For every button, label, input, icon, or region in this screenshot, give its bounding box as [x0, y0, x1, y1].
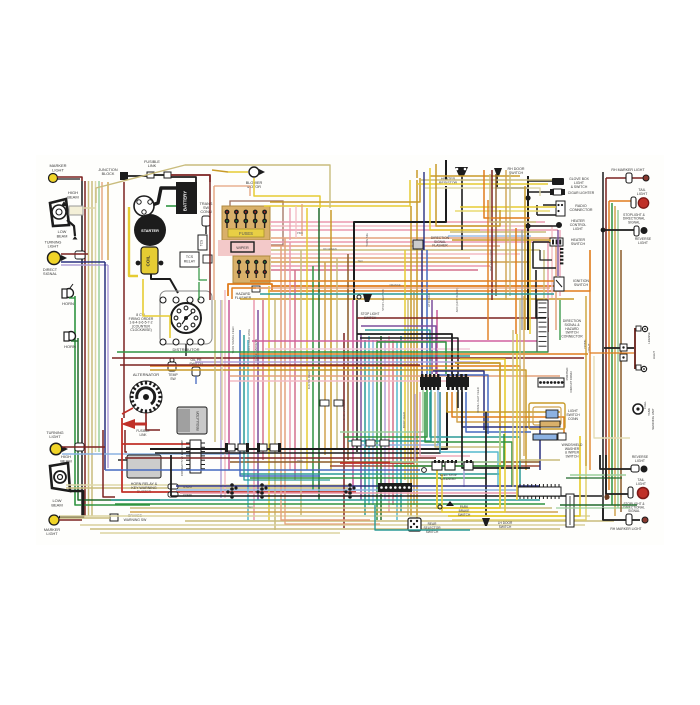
svg-text:ACC (HOT IN ACC): ACC (HOT IN ACC) — [455, 288, 459, 313]
svg-text:SOLENOID: SOLENOID — [440, 477, 456, 481]
svg-text:SIGNAL: SIGNAL — [43, 272, 57, 276]
svg-text:LINK: LINK — [148, 164, 157, 168]
svg-text:FUEL: FUEL — [643, 401, 647, 409]
svg-text:BODY FEED: BODY FEED — [402, 412, 406, 428]
svg-text:CIGAR LIGHTER: CIGAR LIGHTER — [568, 191, 595, 195]
svg-text:LIGHT: LIGHT — [652, 351, 656, 359]
svg-text:CLOCKWISE): CLOCKWISE) — [130, 328, 151, 332]
svg-text:TAN: TAN — [358, 259, 363, 263]
svg-text:BLOCK: BLOCK — [102, 172, 115, 176]
svg-text:ACC FEED WIRE: ACC FEED WIRE — [247, 329, 251, 351]
svg-text:SENDING UNIT: SENDING UNIT — [651, 408, 655, 430]
svg-text:BEAM: BEAM — [51, 503, 62, 508]
svg-text:CIRCUIT CONN: CIRCUIT CONN — [569, 372, 573, 393]
svg-text:BATTERY: BATTERY — [183, 191, 188, 211]
svg-text:BEAM: BEAM — [57, 235, 68, 239]
svg-text:PINK: PINK — [297, 231, 303, 235]
svg-text:SWITCH: SWITCH — [574, 283, 589, 287]
svg-text:SIGNAL: SIGNAL — [628, 509, 640, 513]
svg-text:CONNECTOR: CONNECTOR — [561, 335, 583, 339]
svg-text:HORN: HORN — [62, 301, 74, 306]
svg-text:LIGHT: LIGHT — [52, 168, 64, 173]
svg-text:LIGHT: LIGHT — [573, 227, 583, 231]
svg-text:SWITCH: SWITCH — [571, 242, 586, 246]
svg-text:LIGHT: LIGHT — [635, 459, 645, 463]
svg-text:& SWITCH: & SWITCH — [571, 185, 588, 189]
svg-text:STARTER: STARTER — [141, 229, 159, 233]
svg-text:TURN SIG: TURN SIG — [365, 233, 369, 246]
svg-text:ENG HARNESS: ENG HARNESS — [342, 400, 346, 420]
svg-text:DOME LIGHT FEED: DOME LIGHT FEED — [476, 387, 480, 413]
svg-text:SWITCH: SWITCH — [364, 316, 377, 320]
svg-text:BAT FEED WIRE: BAT FEED WIRE — [489, 249, 493, 271]
svg-text:RELAY: RELAY — [184, 260, 196, 264]
svg-text:HORN: HORN — [64, 344, 76, 349]
svg-text:SWITCH: SWITCH — [499, 525, 512, 529]
svg-text:SWITCH: SWITCH — [509, 171, 524, 175]
svg-text:FLASHER: FLASHER — [432, 244, 448, 248]
svg-text:LOW: LOW — [58, 230, 67, 234]
svg-text:TCS: TCS — [200, 240, 204, 246]
svg-text:TCS: TCS — [186, 255, 194, 259]
svg-text:DASH HARNESS: DASH HARNESS — [254, 339, 258, 361]
svg-text:LIGHT: LIGHT — [638, 241, 648, 245]
svg-text:LIGHT: LIGHT — [637, 192, 648, 196]
svg-text:WARNING SW: WARNING SW — [124, 518, 147, 522]
svg-text:TAN: TAN — [248, 505, 253, 509]
svg-text:IGN SW FEED: IGN SW FEED — [307, 371, 311, 390]
svg-text:BRN: BRN — [297, 459, 303, 463]
svg-text:LICENSE: LICENSE — [647, 332, 651, 344]
svg-text:LINK: LINK — [139, 433, 147, 437]
svg-text:COIL: COIL — [146, 255, 151, 266]
svg-text:CONNECTOR: CONNECTOR — [569, 208, 592, 212]
svg-text:WIPER: WIPER — [236, 246, 249, 250]
svg-text:REGULATOR: REGULATOR — [196, 411, 200, 431]
svg-text:ALTERNATOR: ALTERNATOR — [133, 372, 159, 377]
svg-text:SWITCH: SWITCH — [565, 454, 579, 458]
svg-text:RH MARKER LIGHT: RH MARKER LIGHT — [610, 527, 641, 531]
svg-text:STOP LIGHT SW: STOP LIGHT SW — [381, 289, 385, 311]
svg-text:TURN SIGNAL FEED: TURN SIGNAL FEED — [231, 327, 235, 354]
svg-text:LIGHT: LIGHT — [48, 245, 60, 249]
svg-text:CONN: CONN — [568, 417, 579, 421]
svg-text:SW: SW — [170, 377, 176, 381]
svg-text:LIGHT: LIGHT — [636, 482, 646, 486]
svg-text:LIGHT: LIGHT — [49, 435, 61, 439]
svg-text:BEAM: BEAM — [67, 195, 78, 200]
svg-text:LIGHT: LIGHT — [46, 532, 58, 536]
svg-text:HTR FEED: HTR FEED — [427, 293, 431, 307]
svg-text:DK GREEN: DK GREEN — [323, 247, 337, 251]
svg-text:RR BODY CONN: RR BODY CONN — [379, 494, 401, 498]
svg-text:SWITCH: SWITCH — [458, 513, 471, 517]
svg-text:RH MARKER LIGHT: RH MARKER LIGHT — [611, 168, 645, 172]
svg-text:SIGNAL: SIGNAL — [628, 220, 640, 224]
svg-text:ORANGE: ORANGE — [389, 283, 401, 287]
svg-text:FUSES: FUSES — [239, 231, 253, 236]
